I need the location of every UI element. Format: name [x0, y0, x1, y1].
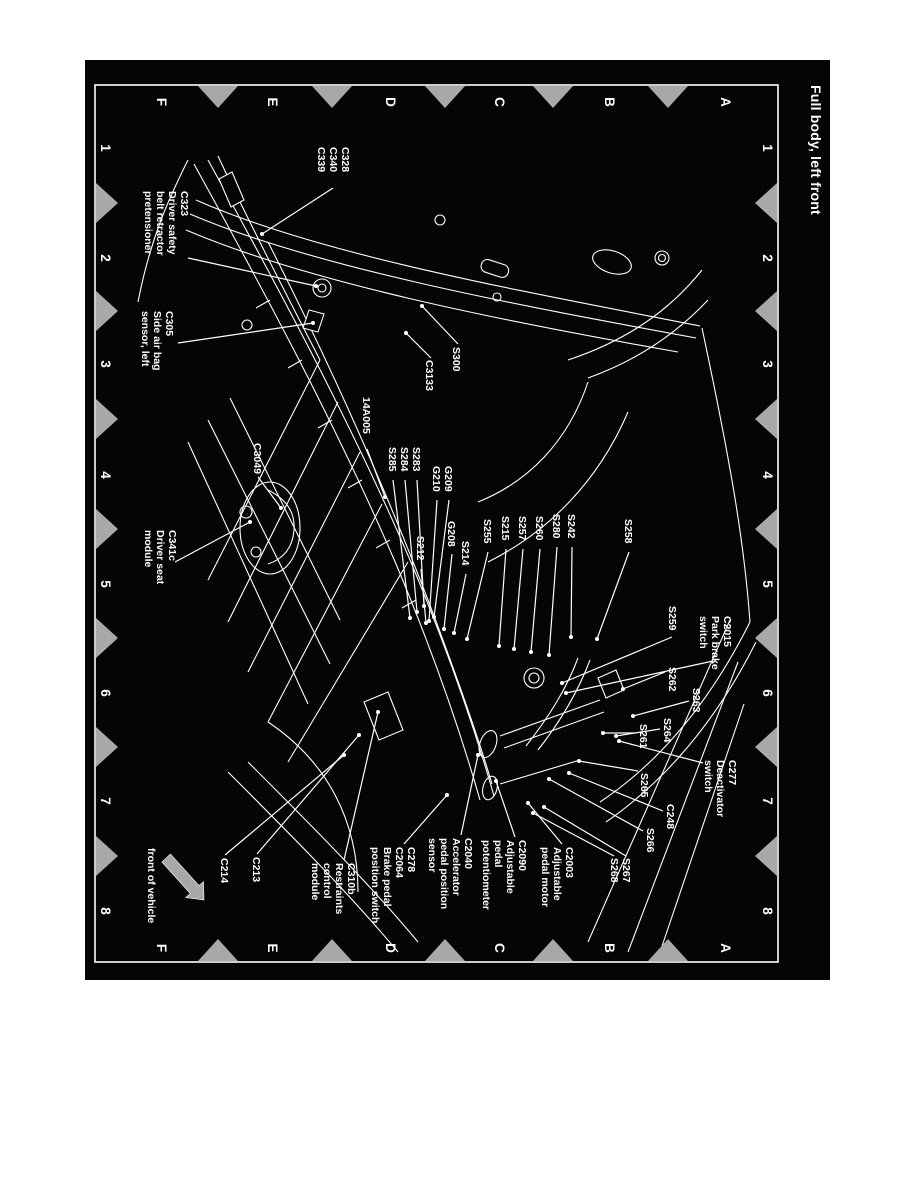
grid-number: 6: [760, 689, 775, 697]
label-text: C323: [178, 191, 190, 216]
grid-number: 2: [98, 254, 113, 262]
leader-endpoint: [452, 631, 456, 635]
grid-number: 8: [760, 907, 775, 915]
label-text: switch: [697, 616, 709, 649]
leader-line: [178, 323, 313, 343]
grid-reference-letters: AABBCCDDEEFF: [154, 97, 733, 953]
grid-number: 4: [98, 471, 113, 479]
label-text: S259: [666, 606, 678, 631]
label-text: sensor: [426, 838, 438, 872]
registration-mark: [425, 86, 465, 108]
leader-endpoint: [376, 710, 380, 714]
label-C2003: C2003Adjustablepedal motor: [526, 801, 575, 907]
grid-number: 8: [98, 907, 113, 915]
label-text: S258: [622, 519, 634, 544]
label-text: S257: [516, 516, 528, 541]
label-text: C3133: [423, 360, 435, 391]
leader-endpoint: [577, 759, 581, 763]
grid-letter: E: [265, 943, 280, 952]
label-S263: S263: [631, 688, 702, 718]
leader-line: [623, 672, 665, 689]
grid-number: 7: [98, 797, 113, 805]
grid-number: 3: [98, 360, 113, 368]
registration-mark: [96, 727, 118, 767]
label-text: Deactivator: [714, 760, 726, 817]
front-of-vehicle-label: front of vehicle: [145, 848, 157, 923]
leader-endpoint: [420, 304, 424, 308]
leader-endpoint: [260, 232, 264, 236]
registration-mark: [755, 399, 777, 439]
leader-endpoint: [311, 321, 315, 325]
leader-line: [528, 803, 562, 844]
grid-number: 3: [760, 360, 775, 368]
registration-mark: [198, 86, 238, 108]
label-C328-group: C328C340C339: [260, 147, 351, 236]
leader-endpoint: [314, 284, 318, 288]
label-text: pedal: [492, 840, 504, 868]
label-text: pedal position: [438, 838, 450, 909]
leader-endpoint: [542, 805, 546, 809]
label-text: Accelerator: [450, 838, 462, 896]
label-text: C278: [405, 847, 417, 872]
label-text: control: [321, 863, 333, 899]
registration-mark: [96, 509, 118, 549]
label-text: S261: [637, 724, 649, 749]
registration-mark: [755, 291, 777, 331]
label-14A005: 14A005: [360, 397, 387, 499]
registration-mark: [312, 86, 352, 108]
label-text: position switch: [369, 847, 381, 923]
grid-letter: C: [492, 97, 507, 107]
leader-endpoint: [529, 650, 533, 654]
label-S261: S261: [601, 724, 649, 749]
leader-endpoint: [408, 616, 412, 620]
leader-line: [579, 761, 638, 771]
label-text: S266: [644, 828, 656, 853]
leader-endpoint: [569, 635, 573, 639]
label-text: C341c: [166, 530, 178, 561]
grid-letter: B: [602, 943, 617, 953]
label-C3133: C3133: [404, 331, 435, 391]
leader-endpoint: [404, 331, 408, 335]
leader-endpoint: [383, 495, 387, 499]
registration-mark: [755, 183, 777, 223]
label-text: belt retractor: [154, 191, 166, 256]
label-text: switch: [702, 760, 714, 793]
leader-endpoint: [617, 739, 621, 743]
leader-line: [225, 755, 344, 855]
body-diagram-svg: front of vehicle 1122334455667788AABBCCD…: [85, 60, 830, 980]
grid-number: 5: [760, 580, 775, 588]
label-text: Park brake: [709, 616, 721, 670]
label-S258: S258: [595, 519, 634, 641]
leader-endpoint: [357, 733, 361, 737]
label-text: potentiometer: [480, 840, 492, 910]
registration-mark: [96, 399, 118, 439]
label-text: C340: [327, 147, 339, 172]
label-S257: S257: [512, 516, 528, 651]
label-text: Driver seat: [154, 530, 166, 585]
leader-endpoint: [445, 793, 449, 797]
leader-line: [454, 574, 466, 633]
leader-endpoint: [497, 644, 501, 648]
grid-number: 7: [760, 797, 775, 805]
grid-number: 6: [98, 689, 113, 697]
label-text: S263: [690, 688, 702, 713]
label-text: Driver safety: [166, 191, 178, 255]
leader-line: [367, 449, 385, 497]
label-text: 14A005: [360, 397, 372, 434]
label-text: S264: [661, 718, 673, 743]
grid-letter: E: [265, 97, 280, 106]
leader-endpoint: [476, 753, 480, 757]
leader-line: [499, 549, 506, 646]
label-S214: S214: [452, 541, 471, 635]
label-text: C214: [218, 858, 230, 883]
label-C2040: C2040Acceleratorpedal positionsensor: [426, 753, 480, 909]
label-text: S300: [450, 347, 462, 372]
label-text: S268: [608, 858, 620, 883]
grid-letter: F: [154, 944, 169, 952]
label-text: S283: [410, 447, 422, 472]
label-text: G208: [445, 521, 457, 547]
grid-letter: D: [383, 943, 398, 953]
label-text: C3049: [251, 443, 263, 474]
leader-endpoint: [442, 627, 446, 631]
label-text: C339: [315, 147, 327, 172]
registration-mark: [198, 939, 238, 961]
leader-endpoint: [547, 653, 551, 657]
label-text: C213: [250, 857, 262, 882]
grid-letter: F: [154, 98, 169, 106]
registration-mark: [648, 86, 688, 108]
leader-endpoint: [248, 520, 252, 524]
grid-number: 4: [760, 471, 775, 479]
registration-mark: [96, 618, 118, 658]
label-C2015: C2015Park brakeswitch: [564, 616, 733, 695]
label-text: G209: [442, 466, 454, 492]
label-text: C248: [664, 804, 676, 829]
leader-endpoint: [465, 637, 469, 641]
label-text: module: [142, 530, 154, 567]
label-text: S242: [565, 514, 577, 539]
label-text: S285: [386, 447, 398, 472]
leader-endpoint: [567, 771, 571, 775]
leader-endpoint: [279, 506, 283, 510]
label-C277: C277Deactivatorswitch: [617, 739, 738, 817]
registration-mark: [755, 836, 777, 876]
grid-letter: A: [718, 943, 733, 953]
label-S255: S255: [465, 519, 493, 641]
label-S280: S280: [547, 514, 562, 657]
leader-line: [461, 755, 478, 835]
scanned-manual-page: Full body, left front front of vehicle 1…: [0, 0, 918, 1188]
label-text: Side air bag: [151, 311, 163, 371]
leader-line: [597, 552, 629, 639]
leader-line: [175, 522, 250, 562]
label-text: module: [309, 863, 321, 900]
label-text: S260: [533, 516, 545, 541]
diagram-sheet: Full body, left front front of vehicle 1…: [85, 60, 830, 980]
label-text: C328: [339, 147, 351, 172]
leader-line: [531, 549, 540, 652]
label-S283-group: S283S284S285: [386, 447, 426, 620]
leader-line: [496, 781, 515, 837]
registration-mark: [96, 836, 118, 876]
label-text: Brake pedal: [381, 847, 393, 907]
label-text: C2064: [393, 847, 405, 878]
leader-line: [262, 188, 333, 234]
label-text: Restraints: [333, 863, 345, 915]
registration-mark: [312, 939, 352, 961]
label-text: sensor, left: [139, 311, 151, 367]
label-text: S255: [481, 519, 493, 544]
leader-endpoint: [564, 691, 568, 695]
registration-mark: [755, 618, 777, 658]
label-text: S262: [666, 667, 678, 692]
leader-endpoint: [595, 637, 599, 641]
leader-line: [404, 795, 447, 844]
leader-endpoint: [631, 714, 635, 718]
leader-endpoint: [560, 681, 564, 685]
label-text: C2090: [516, 840, 528, 871]
front-of-vehicle-arrow: [162, 854, 204, 900]
label-text: pedal motor: [539, 847, 551, 907]
registration-mark: [755, 509, 777, 549]
registration-mark: [755, 727, 777, 767]
label-text: S265: [638, 773, 650, 798]
leader-endpoint: [512, 647, 516, 651]
registration-mark: [533, 939, 573, 961]
label-S259: S259: [560, 606, 678, 685]
label-text: S267: [620, 858, 632, 883]
label-text: S215: [499, 516, 511, 541]
label-text: S214: [459, 541, 471, 566]
leader-endpoint: [601, 731, 605, 735]
registration-mark: [648, 939, 688, 961]
leader-line: [514, 549, 523, 649]
leader-endpoint: [494, 779, 498, 783]
grid-letter: D: [383, 97, 398, 107]
label-text: S284: [398, 447, 410, 472]
grid-number: 5: [98, 580, 113, 588]
label-text: Adjustable: [504, 840, 516, 894]
label-text: G210: [430, 466, 442, 492]
label-text: C310b: [345, 863, 357, 895]
leader-endpoint: [415, 610, 419, 614]
leader-endpoint: [526, 801, 530, 805]
grid-letter: B: [602, 97, 617, 107]
leader-line: [571, 547, 572, 637]
label-text: pretensioner: [142, 191, 154, 255]
leader-line: [549, 547, 557, 655]
leader-line: [406, 333, 431, 358]
leader-endpoint: [424, 621, 428, 625]
label-text: C2040: [462, 838, 474, 869]
registration-mark: [425, 939, 465, 961]
label-text: S212: [414, 536, 426, 561]
grid-letter: A: [718, 97, 733, 107]
grid-number: 1: [98, 144, 113, 152]
label-S260: S260: [529, 516, 545, 654]
leader-line: [422, 306, 458, 344]
label-text: Adjustable: [551, 847, 563, 901]
grid-number: 2: [760, 254, 775, 262]
rotated-canvas: Full body, left front front of vehicle 1…: [85, 60, 830, 980]
label-S242: S242: [565, 514, 577, 639]
label-text: C277: [726, 760, 738, 785]
grid-number: 1: [760, 144, 775, 152]
leader-line: [188, 258, 316, 286]
leader-line: [344, 712, 378, 860]
label-C341c: C341cDriver seatmodule: [142, 520, 252, 585]
leader-endpoint: [432, 615, 436, 619]
label-text: S280: [550, 514, 562, 539]
label-text: C2015: [721, 616, 733, 647]
registration-mark: [96, 291, 118, 331]
label-S215: S215: [497, 516, 511, 648]
leader-line: [257, 735, 359, 854]
registration-mark: [533, 86, 573, 108]
label-C3049: C3049: [251, 443, 283, 510]
leader-endpoint: [342, 753, 346, 757]
leader-line: [633, 701, 689, 716]
leader-endpoint: [621, 687, 625, 691]
leader-endpoint: [547, 777, 551, 781]
label-C2090: C2090Adjustablepedalpotentiometer: [480, 779, 528, 910]
grid-reference-numbers: 1122334455667788: [98, 144, 775, 915]
label-text: C2003: [563, 847, 575, 878]
grid-letter: C: [492, 943, 507, 953]
registration-mark: [96, 183, 118, 223]
leader-endpoint: [614, 734, 618, 738]
label-text: C305: [163, 311, 175, 336]
leader-line: [444, 554, 452, 629]
label-G208: G208: [442, 521, 457, 631]
